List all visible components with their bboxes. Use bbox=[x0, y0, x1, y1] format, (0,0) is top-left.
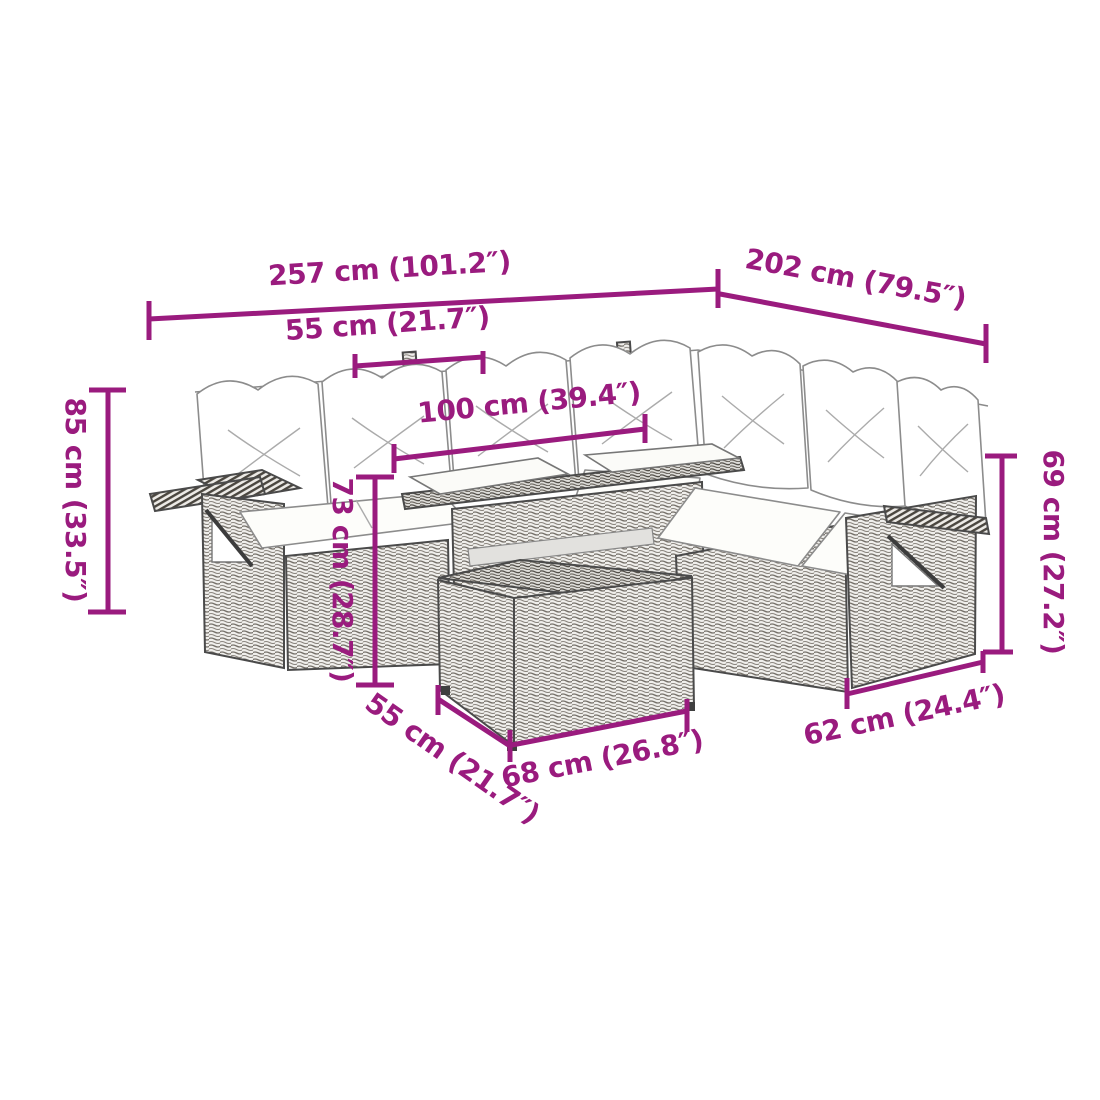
dim-overall-depth: 202 cm (79.5″) bbox=[720, 242, 986, 363]
dim-back-height: 85 cm (33.5″) bbox=[59, 390, 126, 612]
sofa-base-face bbox=[286, 540, 450, 670]
dim-label-overall-width: 257 cm (101.2″) bbox=[267, 245, 511, 293]
right-end-unit bbox=[846, 496, 989, 688]
ottoman-front-face bbox=[514, 578, 694, 746]
dim-label-table-height: 73 cm (28.7″) bbox=[326, 478, 359, 683]
dim-label-arm-height: 69 cm (27.2″) bbox=[1037, 450, 1070, 655]
ottoman-foot bbox=[441, 686, 450, 695]
dim-label-back-height: 85 cm (33.5″) bbox=[59, 398, 92, 603]
dim-arm-height: 69 cm (27.2″) bbox=[983, 450, 1070, 655]
diagram-svg: 257 cm (101.2″) 202 cm (79.5″) 55 cm (21… bbox=[0, 0, 1100, 1100]
back-cushion bbox=[803, 360, 906, 506]
product-dimension-diagram: 257 cm (101.2″) 202 cm (79.5″) 55 cm (21… bbox=[0, 0, 1100, 1100]
dim-label-seat-width-top: 55 cm (21.7″) bbox=[284, 300, 491, 347]
